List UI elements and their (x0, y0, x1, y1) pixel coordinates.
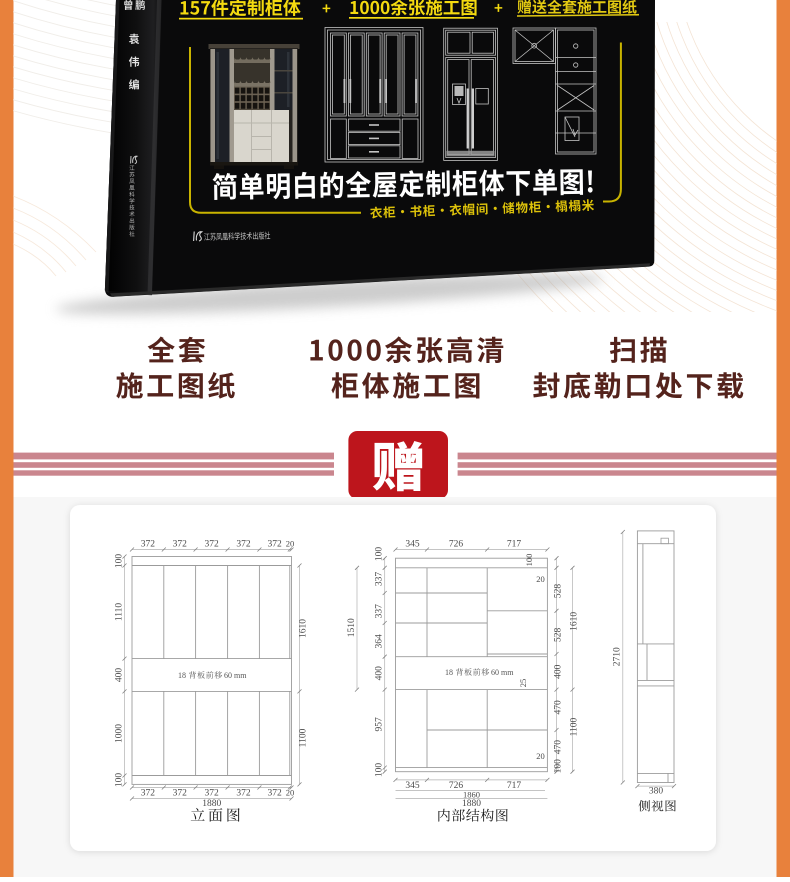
svg-text:364: 364 (375, 634, 385, 649)
svg-text:372: 372 (267, 789, 282, 799)
svg-text:337: 337 (375, 572, 385, 587)
svg-text:380: 380 (649, 786, 664, 796)
svg-text:2710: 2710 (613, 647, 623, 666)
svg-text:100: 100 (524, 554, 534, 567)
svg-text:20: 20 (536, 574, 545, 584)
svg-text:1610: 1610 (299, 619, 309, 638)
svg-text:1610: 1610 (570, 612, 580, 631)
svg-text:470: 470 (554, 700, 564, 715)
svg-text:1110: 1110 (115, 603, 125, 622)
svg-text:1510: 1510 (347, 618, 357, 637)
svg-text:372: 372 (236, 540, 251, 550)
svg-text:25: 25 (518, 679, 528, 688)
svg-text:20: 20 (286, 788, 295, 798)
svg-text:1880: 1880 (462, 799, 481, 809)
svg-text:100: 100 (115, 554, 125, 569)
svg-text:337: 337 (375, 604, 385, 619)
svg-text:1000: 1000 (115, 724, 125, 743)
svg-text:372: 372 (141, 540, 156, 550)
svg-text:726: 726 (449, 781, 464, 791)
svg-text:100: 100 (554, 759, 564, 774)
svg-text:345: 345 (405, 781, 420, 791)
svg-text:100: 100 (375, 547, 385, 562)
svg-text:1860: 1860 (463, 789, 480, 799)
svg-text:372: 372 (204, 540, 219, 550)
svg-text:372: 372 (236, 789, 251, 799)
svg-text:60 mm: 60 mm (224, 671, 247, 680)
svg-text:372: 372 (204, 789, 219, 799)
svg-text:20: 20 (536, 751, 545, 761)
svg-text:528: 528 (554, 584, 564, 599)
svg-text:345: 345 (405, 540, 420, 550)
svg-text:372: 372 (267, 540, 282, 550)
svg-text:18: 18 (178, 671, 186, 680)
svg-text:372: 372 (141, 789, 156, 799)
svg-text:717: 717 (507, 540, 522, 550)
svg-text:717: 717 (507, 781, 522, 791)
svg-text:1100: 1100 (299, 728, 309, 747)
svg-text:1880: 1880 (202, 799, 221, 809)
svg-text:100: 100 (375, 763, 385, 778)
svg-text:528: 528 (554, 628, 564, 643)
svg-text:470: 470 (554, 740, 564, 755)
svg-text:60 mm: 60 mm (491, 668, 514, 677)
svg-text:372: 372 (173, 540, 188, 550)
svg-text:400: 400 (115, 668, 125, 683)
svg-text:726: 726 (449, 540, 464, 550)
svg-text:372: 372 (173, 789, 188, 799)
svg-text:400: 400 (554, 664, 564, 679)
svg-text:400: 400 (375, 666, 385, 681)
svg-text:100: 100 (115, 773, 125, 788)
svg-text:20: 20 (286, 539, 295, 549)
svg-text:957: 957 (375, 717, 385, 732)
svg-text:1100: 1100 (570, 718, 580, 737)
svg-text:18: 18 (445, 668, 453, 677)
